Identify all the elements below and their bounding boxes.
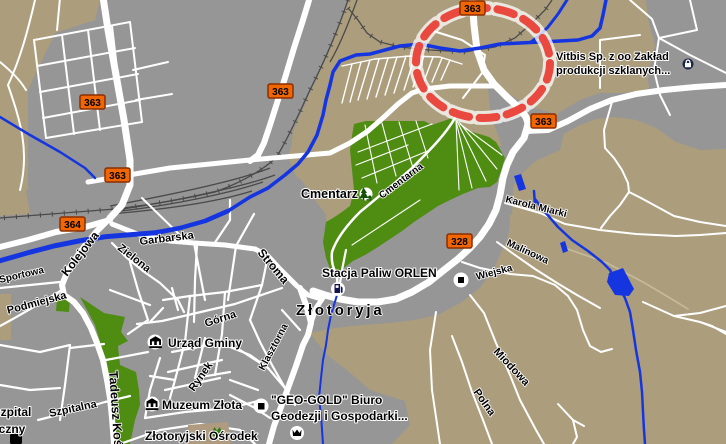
svg-text:Vitbis Sp. z oo Zakład: Vitbis Sp. z oo Zakład: [556, 51, 669, 63]
svg-text:363: 363: [535, 117, 552, 128]
svg-text:363: 363: [84, 98, 101, 109]
svg-text:363: 363: [272, 87, 289, 98]
svg-text:Złotoryjski Ośrodek: Złotoryjski Ośrodek: [145, 429, 258, 443]
svg-text:364: 364: [64, 220, 81, 231]
svg-text:Muzeum Złota: Muzeum Złota: [162, 398, 242, 412]
svg-text:"GEO-GOLD" Biuro: "GEO-GOLD" Biuro: [271, 393, 382, 407]
svg-text:Stacja Paliw ORLEN: Stacja Paliw ORLEN: [322, 266, 437, 280]
svg-text:328: 328: [451, 237, 468, 248]
svg-text:szpital: szpital: [0, 405, 31, 419]
svg-text:Urząd Gminy: Urząd Gminy: [168, 336, 242, 350]
svg-text:Cmentarz: Cmentarz: [301, 187, 358, 201]
svg-text:yczny: yczny: [0, 422, 26, 436]
svg-text:Geodezji i Gospodarki...: Geodezji i Gospodarki...: [271, 409, 408, 423]
svg-text:363: 363: [109, 171, 126, 182]
svg-text:Złotoryja: Złotoryja: [296, 302, 385, 319]
svg-text:produkcji szklanych...: produkcji szklanych...: [556, 65, 670, 77]
svg-text:363: 363: [464, 4, 481, 15]
